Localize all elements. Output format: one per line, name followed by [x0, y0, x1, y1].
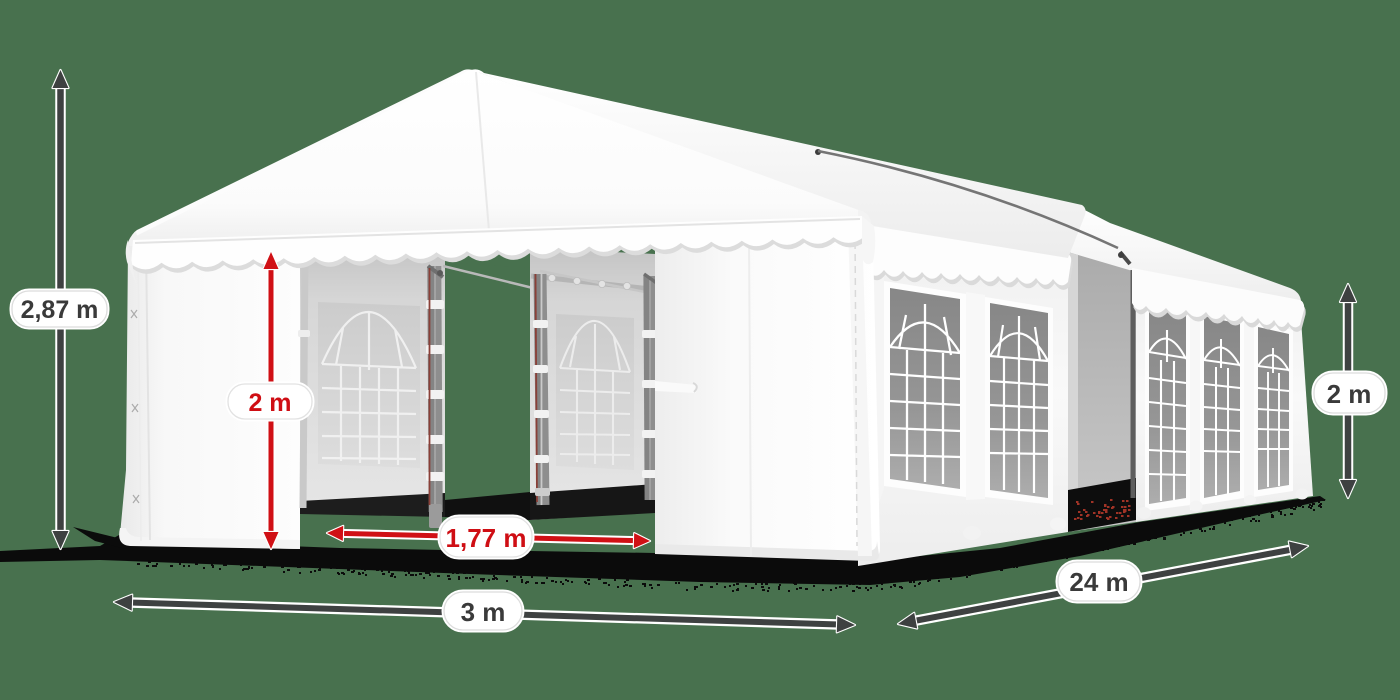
svg-text:2 m: 2 m [1327, 379, 1372, 409]
svg-text:1,77 m: 1,77 m [446, 523, 527, 553]
svg-text:3 m: 3 m [461, 597, 506, 627]
svg-text:2,87 m: 2,87 m [21, 296, 99, 324]
svg-text:2 m: 2 m [248, 389, 291, 417]
svg-text:24 m: 24 m [1069, 567, 1128, 597]
